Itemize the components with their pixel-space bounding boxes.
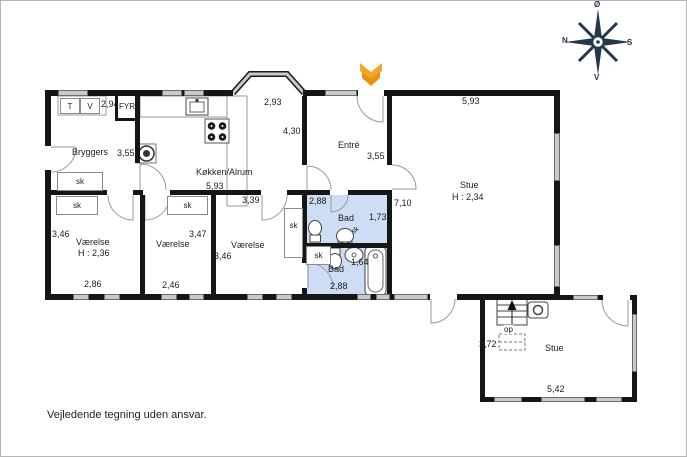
door-arc — [392, 165, 416, 189]
dim-bryggers-depth: 3,55 — [117, 148, 135, 158]
window — [357, 294, 371, 300]
floor-plan: T V sk sk sk sk sk 2,94 FYR Bryggers 3,5… — [0, 0, 687, 457]
closet-label: sk — [315, 251, 323, 260]
dim-vaerelse2-depth: 3,47 — [189, 229, 207, 239]
dim-vaerelse3-depth: 3,46 — [214, 251, 232, 261]
dryer-label: T — [68, 102, 73, 111]
window — [184, 90, 204, 96]
room-label-stue: Stue — [460, 180, 479, 190]
closet-box: sk — [167, 196, 208, 215]
closet-label: sk — [184, 201, 192, 210]
door-arc — [357, 96, 383, 122]
window — [161, 294, 177, 300]
door-arc — [431, 299, 455, 323]
window — [573, 295, 598, 300]
window — [58, 90, 88, 96]
stove-icon — [205, 119, 229, 143]
closet-label: sk — [76, 177, 84, 186]
room-label-entre: Entré — [338, 140, 360, 150]
kitchen-sink-icon — [186, 98, 208, 115]
wall — [45, 294, 430, 300]
room-label-fyr: FYR — [119, 102, 135, 111]
compass-east-label: Ø — [594, 0, 600, 9]
closet-box: sk — [284, 208, 303, 258]
window — [494, 397, 522, 402]
room-label-bryggers: Bryggers — [72, 147, 108, 157]
room-label-vaerelse2: Værelse — [156, 239, 190, 249]
entrance-arrow-icon — [360, 63, 382, 86]
window — [554, 133, 560, 181]
room-label-bad2: Bad — [328, 264, 344, 274]
ceiling-vaerelse1: H : 2,36 — [78, 248, 110, 258]
closet-label: sk — [73, 201, 81, 210]
window — [276, 294, 292, 300]
closet-box: sk — [56, 196, 98, 215]
room-label-kokken: Køkken/Alrum — [196, 167, 253, 177]
room-label-vaerelse1: Værelse — [76, 237, 110, 247]
closet-label: sk — [290, 221, 298, 230]
window — [104, 294, 120, 300]
dim-vaerelse3-width: 3,39 — [242, 195, 260, 205]
wall — [115, 118, 138, 121]
window — [541, 397, 585, 402]
ceiling-stue: H : 2,34 — [452, 192, 484, 202]
window — [394, 294, 428, 300]
dim-kokken-width: 5,93 — [206, 181, 224, 191]
window — [73, 294, 89, 300]
closet-box: sk — [57, 172, 103, 191]
wall — [140, 195, 145, 294]
dim-vaerelse1-width: 2,86 — [84, 279, 102, 289]
dim-stue2-depth: 3,72 — [479, 339, 497, 349]
closet-box: sk — [306, 246, 331, 265]
dim-entre-depth: 3,55 — [367, 151, 385, 161]
wall — [302, 96, 307, 165]
dim-stue-depth: 7,10 — [394, 198, 412, 208]
window — [376, 294, 390, 300]
door-arc — [602, 300, 628, 326]
room-label-bad1: Bad — [338, 213, 354, 223]
dim-bad1-depth: 1,73 — [369, 212, 387, 222]
window — [596, 397, 622, 402]
stairs-up-label: op — [504, 325, 513, 334]
window — [632, 314, 637, 372]
dim-bad2-depth: 1,64 — [351, 257, 369, 267]
dim-bryggers-width: 2,94 — [101, 99, 119, 109]
window — [325, 90, 357, 96]
window — [247, 294, 263, 300]
dim-vaerelse1-depth: 3,46 — [52, 229, 70, 239]
wall — [302, 288, 307, 294]
window — [554, 245, 560, 287]
dim-vaerelse2-width: 2,46 — [162, 280, 180, 290]
wall — [211, 195, 216, 294]
window — [162, 90, 182, 96]
door-arc — [140, 164, 166, 190]
room-label-stue2: Stue — [545, 343, 564, 353]
dim-bad1-width: 2,88 — [309, 196, 327, 206]
wall — [387, 190, 392, 294]
dim-stue-width: 5,93 — [462, 96, 480, 106]
compass-north-label: N — [562, 36, 568, 45]
wall — [45, 90, 51, 146]
dim-stue2-width: 5,42 — [547, 384, 565, 394]
washer-box: V — [80, 98, 100, 114]
wood-stove-icon — [528, 302, 548, 318]
door-arc — [108, 195, 133, 220]
bay-window — [233, 74, 304, 93]
compass-south-label: S — [627, 38, 632, 47]
wall — [287, 190, 330, 195]
compass-rose-icon — [565, 9, 631, 75]
wall — [387, 96, 392, 165]
disclaimer-text: Vejledende tegning uden ansvar. — [47, 409, 207, 421]
dim-entre-width: 2,93 — [264, 97, 282, 107]
dim-kokken-depth: 4,30 — [283, 126, 301, 136]
door-arc — [307, 166, 331, 190]
compass-west-label: V — [594, 73, 599, 82]
dryer-box: T — [60, 98, 80, 114]
wall — [348, 190, 392, 195]
dim-bad2-width: 2,88 — [330, 281, 348, 291]
room-label-vaerelse3: Værelse — [231, 240, 265, 250]
window — [189, 294, 204, 300]
washer-label: V — [87, 102, 92, 111]
wall — [135, 96, 140, 163]
